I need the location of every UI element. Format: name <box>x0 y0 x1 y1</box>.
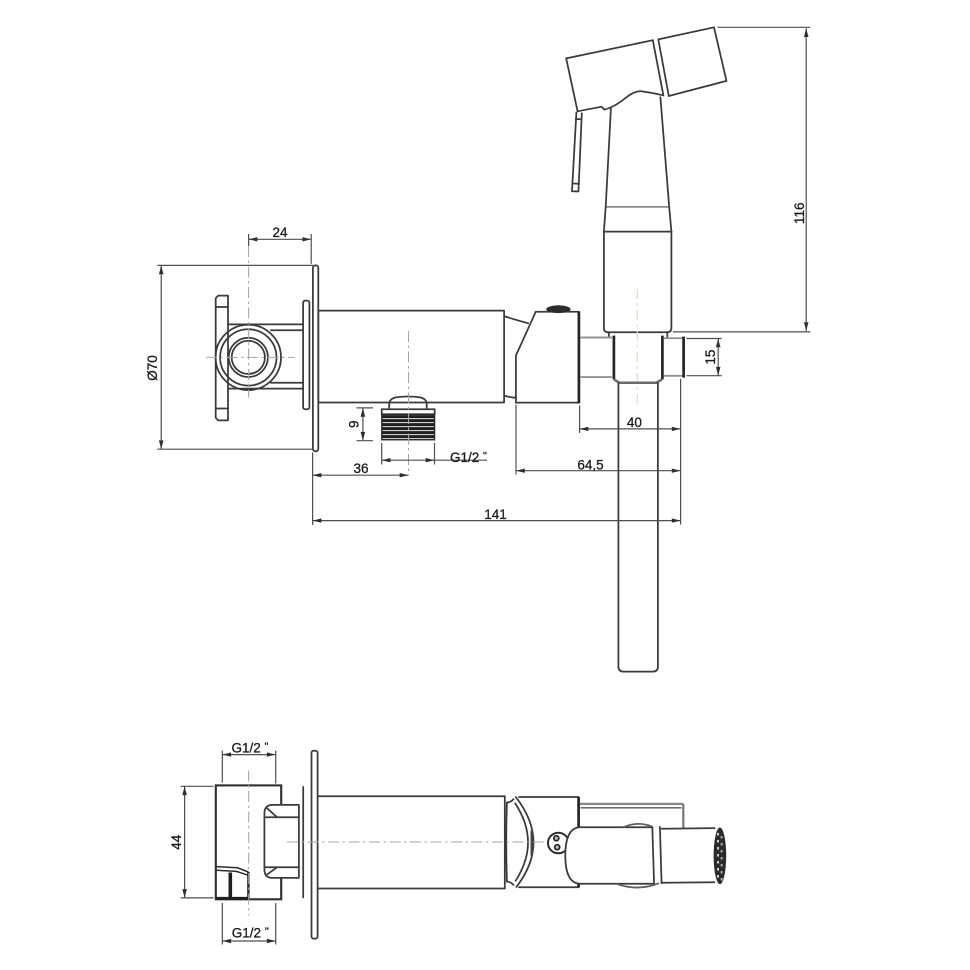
svg-text:64,5: 64,5 <box>577 457 603 472</box>
svg-text:24: 24 <box>272 225 288 240</box>
svg-text:40: 40 <box>627 415 642 430</box>
svg-text:Ø70: Ø70 <box>145 355 160 381</box>
svg-text:36: 36 <box>353 461 368 476</box>
svg-text:116: 116 <box>792 203 807 225</box>
svg-text:141: 141 <box>484 507 507 522</box>
svg-text:44: 44 <box>169 834 184 850</box>
svg-text:G1/2 ": G1/2 " <box>450 450 487 465</box>
svg-text:9: 9 <box>347 421 362 429</box>
svg-text:G1/2 ": G1/2 " <box>232 741 269 756</box>
svg-text:15: 15 <box>703 350 718 365</box>
svg-text:G1/2 ": G1/2 " <box>232 926 269 941</box>
